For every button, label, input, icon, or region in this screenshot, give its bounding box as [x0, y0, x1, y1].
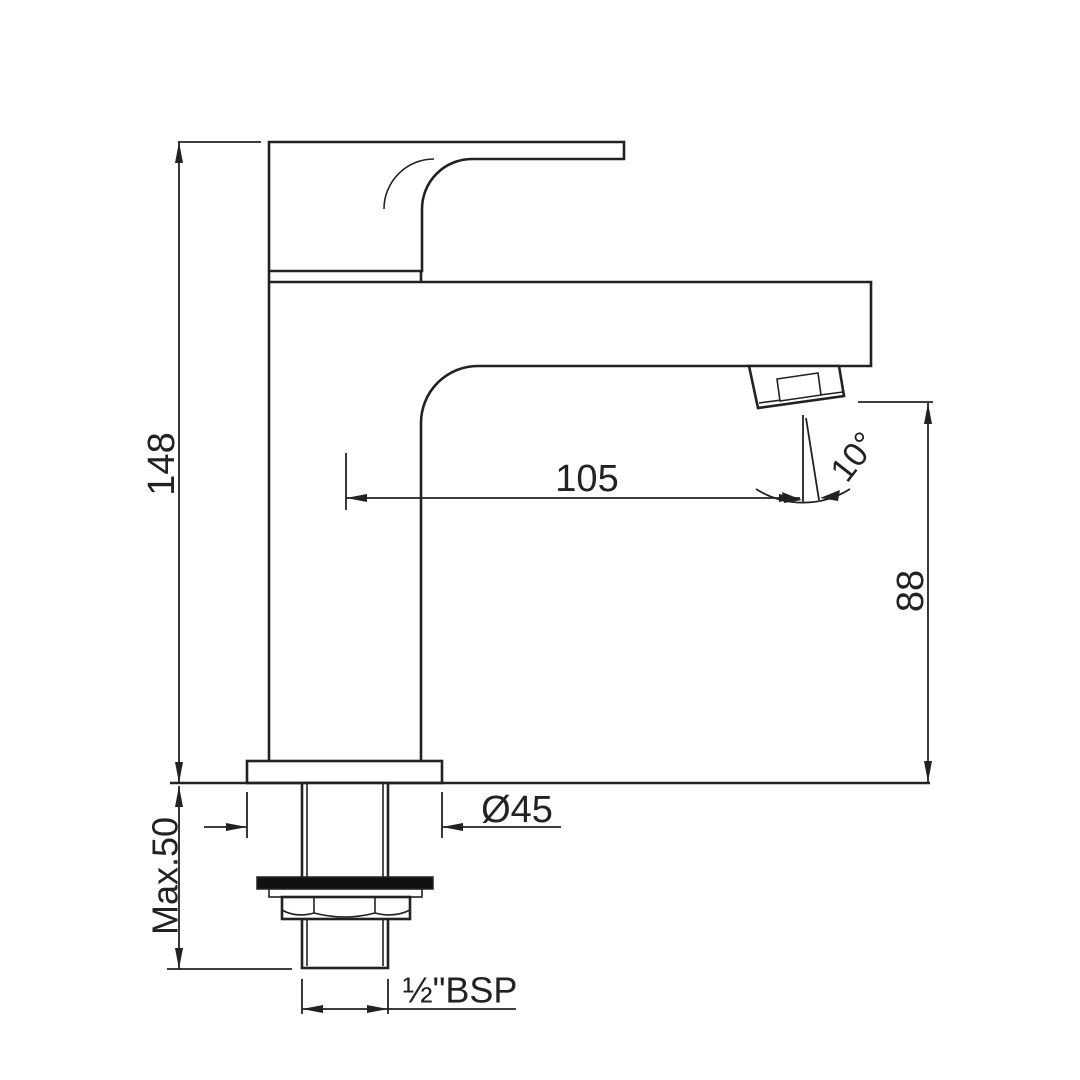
dim-bsp-arrow-right: [367, 1005, 388, 1013]
dim-label-total-height: 148: [141, 432, 183, 495]
dim-label-spray-angle: 10°: [823, 425, 885, 489]
dim-bsp-arrow-left: [302, 1005, 323, 1013]
dim-label-outlet-height: 88: [890, 570, 932, 612]
handle-detail-arc: [384, 159, 434, 209]
spout-body: [269, 271, 871, 761]
faucet-technical-drawing: 148 Max.50 105 88 Ø45 ½"B: [0, 0, 1080, 1080]
dim-88-arrow-top: [924, 403, 932, 424]
mounting-shank: [302, 783, 388, 968]
flange-rect: [247, 761, 442, 783]
dim-label-deck-thickness: Max.50: [145, 817, 186, 935]
dim-label-base-diameter: Ø45: [481, 789, 553, 831]
dim-max50-arrow-top: [175, 786, 183, 807]
dim-148-arrow-bottom: [175, 762, 183, 783]
dim-45-arrow-right: [442, 823, 463, 831]
angle-arrow-right: [820, 490, 840, 501]
aerator: [749, 366, 844, 408]
dimension-spray-angle: 10°: [756, 415, 885, 503]
lever-handle: [269, 142, 624, 282]
shank-body: [302, 783, 388, 968]
hex-nut: [282, 897, 410, 919]
dimension-spout-reach: 105: [346, 453, 800, 510]
dim-88-arrow-bottom: [924, 761, 932, 782]
dim-max50-arrow-bottom: [175, 948, 183, 969]
dim-148-arrow-top: [175, 142, 183, 163]
dim-105-arrow-left: [346, 494, 367, 502]
handle-outline: [269, 142, 624, 271]
dimension-inlet-thread: ½"BSP: [302, 970, 517, 1015]
dim-45-arrow-left: [226, 823, 247, 831]
rubber-washer: [257, 877, 433, 889]
base-flange: [247, 761, 442, 783]
dim-label-inlet-thread: ½"BSP: [403, 970, 518, 1011]
technical-drawing-page: 148 Max.50 105 88 Ø45 ½"B: [0, 0, 1080, 1080]
dim-label-spout-reach: 105: [555, 458, 618, 500]
angle-spray-line: [806, 418, 819, 500]
dimension-total-height: 148: [141, 142, 261, 783]
body-outline: [269, 282, 871, 761]
